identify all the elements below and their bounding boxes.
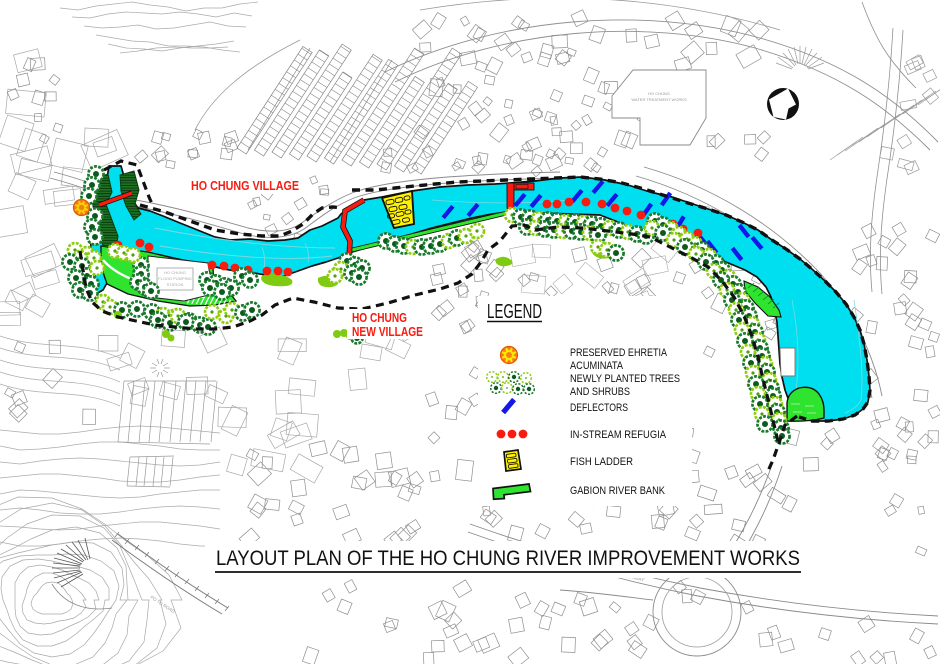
svg-text:AND SHRUBS: AND SHRUBS xyxy=(570,386,630,398)
svg-text:FLOOD PUMPING: FLOOD PUMPING xyxy=(158,276,192,281)
svg-text:HO CHUNG VILLAGE: HO CHUNG VILLAGE xyxy=(191,178,299,193)
svg-text:HO CHUNG: HO CHUNG xyxy=(164,270,186,275)
svg-text:LAYOUT PLAN OF THE HO CHUNG RI: LAYOUT PLAN OF THE HO CHUNG RIVER IMPROV… xyxy=(216,547,800,570)
svg-text:GABION RIVER BANK: GABION RIVER BANK xyxy=(570,485,666,497)
svg-text:STATION: STATION xyxy=(167,282,184,287)
svg-text:ACUMINATA: ACUMINATA xyxy=(570,360,624,372)
svg-text:PRESERVED EHRETIA: PRESERVED EHRETIA xyxy=(570,347,668,359)
svg-text:HO CHUNG: HO CHUNG xyxy=(648,91,670,96)
svg-text:LEGEND: LEGEND xyxy=(487,301,542,323)
svg-text:FISH LADDER: FISH LADDER xyxy=(570,456,633,468)
svg-text:WATER TREATMENT WORKS: WATER TREATMENT WORKS xyxy=(631,97,687,102)
svg-text:HO CHUNG: HO CHUNG xyxy=(352,310,407,325)
svg-text:IN-STREAM REFUGIA: IN-STREAM REFUGIA xyxy=(570,429,667,441)
svg-text:DEFLECTORS: DEFLECTORS xyxy=(570,402,628,414)
svg-text:NEWLY PLANTED TREES: NEWLY PLANTED TREES xyxy=(570,373,680,385)
svg-text:NEW VILLAGE: NEW VILLAGE xyxy=(352,324,423,339)
